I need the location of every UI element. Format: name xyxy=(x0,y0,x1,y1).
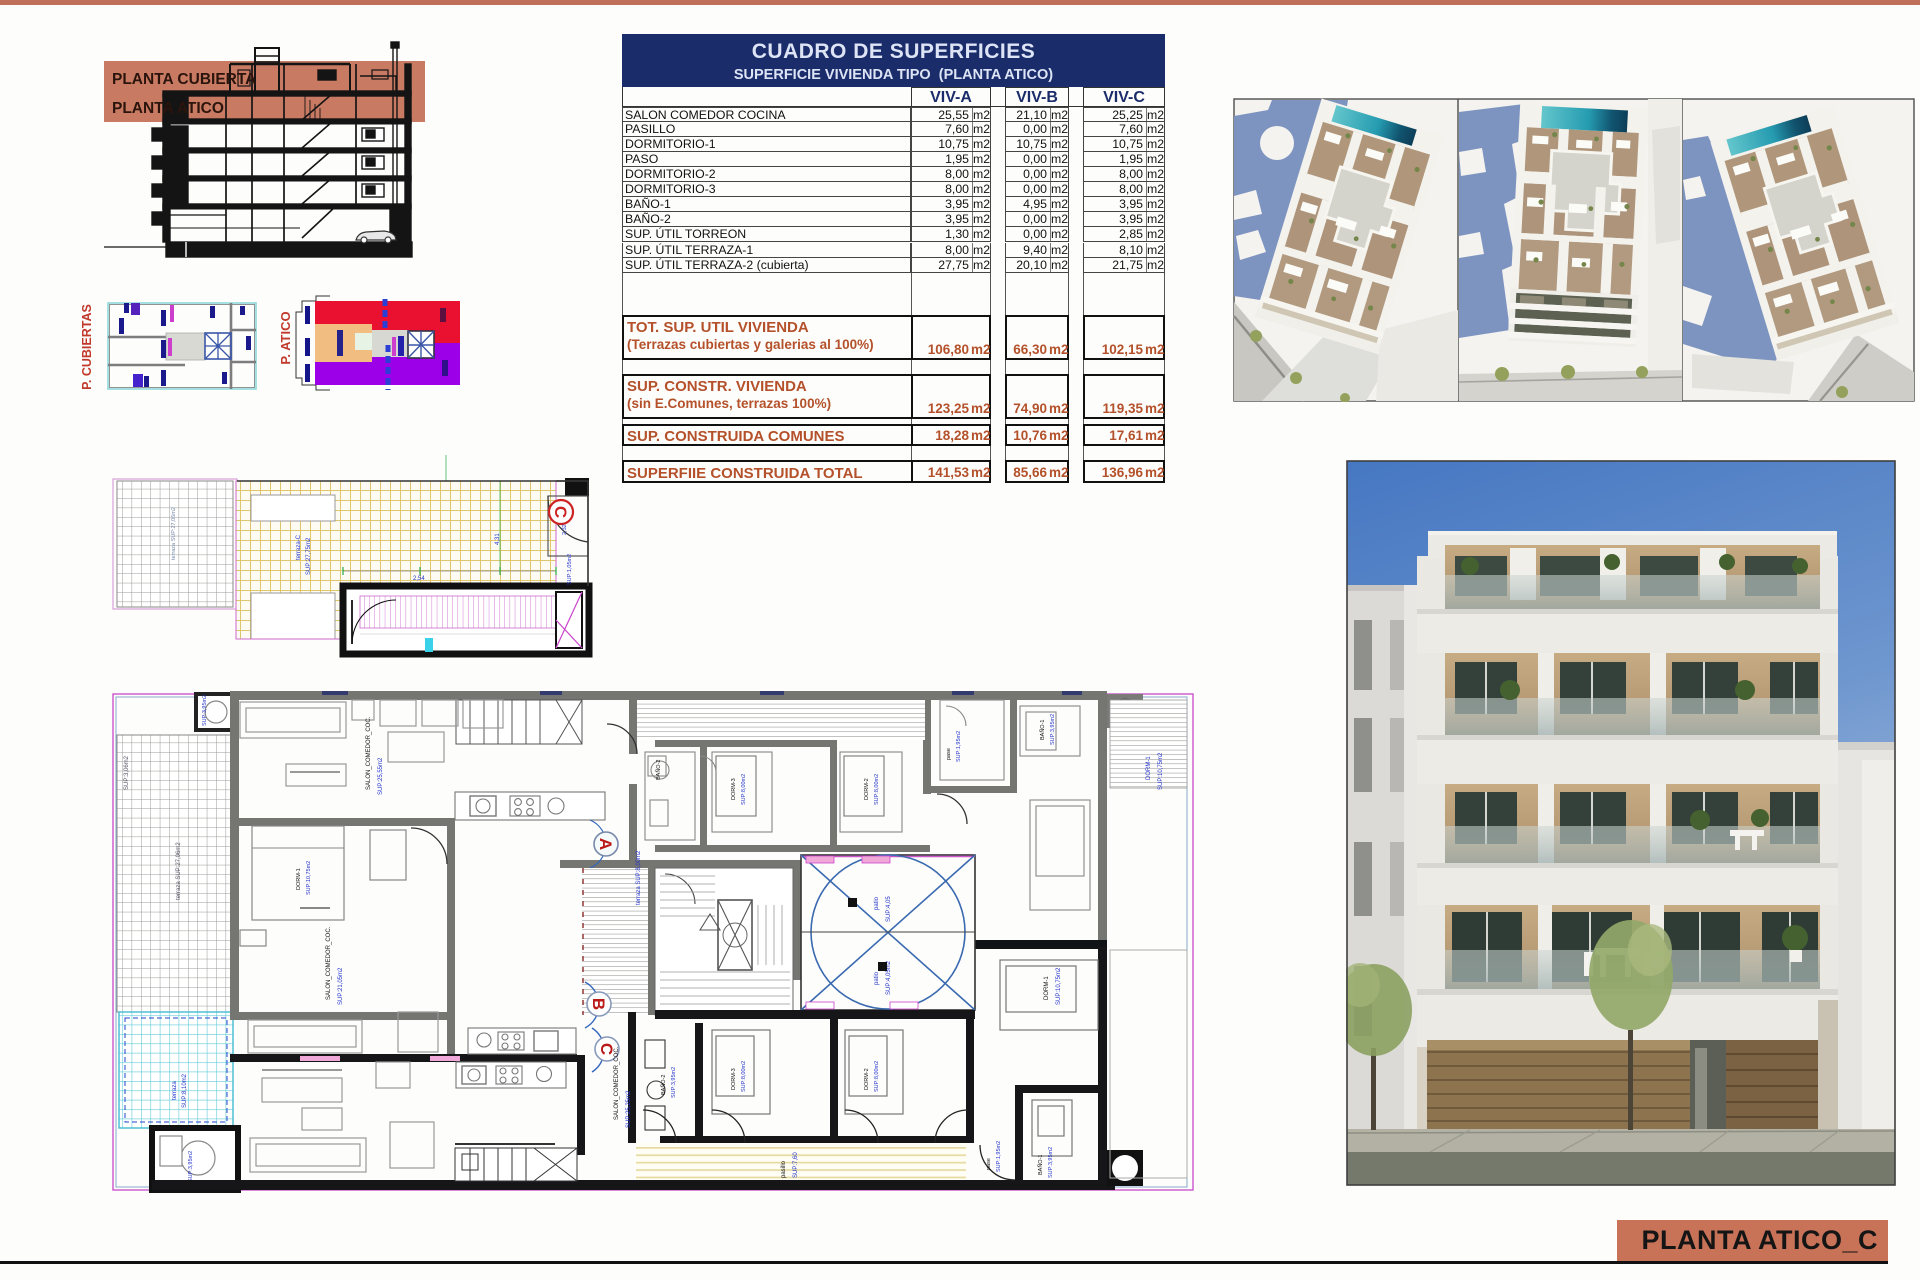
svg-text:terraza: terraza xyxy=(172,1081,178,1100)
svg-text:PLANTA ATICO: PLANTA ATICO xyxy=(112,100,224,117)
svg-text:pase: pase xyxy=(946,748,952,760)
svg-text:2,32: 2,32 xyxy=(562,524,568,535)
svg-text:DORM-2: DORM-2 xyxy=(864,778,870,800)
svg-text:BAÑO-2: BAÑO-2 xyxy=(660,1075,667,1095)
svg-text:B: B xyxy=(589,998,608,1010)
svg-text:SALON_COMEDOR_COC.: SALON_COMEDOR_COC. xyxy=(366,716,372,790)
svg-text:SUP:8,00m2: SUP:8,00m2 xyxy=(874,1061,880,1092)
svg-text:DORM-1: DORM-1 xyxy=(296,868,302,890)
svg-text:SUP:8,00m2: SUP:8,00m2 xyxy=(741,1061,747,1092)
svg-text:SUP:1,95m2: SUP:1,95m2 xyxy=(956,731,962,762)
svg-text:SUP:25,25m2: SUP:25,25m2 xyxy=(626,1090,632,1128)
svg-text:SUP:21,05m2: SUP:21,05m2 xyxy=(338,967,344,1005)
svg-text:SUP:10,75m2: SUP:10,75m2 xyxy=(1158,752,1164,790)
svg-text:C: C xyxy=(551,506,570,518)
svg-text:BAÑO-1: BAÑO-1 xyxy=(1037,1155,1044,1175)
svg-text:DORM-1: DORM-1 xyxy=(1146,756,1152,780)
svg-text:P. CUBIERTAS: P. CUBIERTAS xyxy=(80,304,94,390)
svg-text:patio: patio xyxy=(874,896,880,910)
svg-text:SUP:3,06m2: SUP:3,06m2 xyxy=(124,755,130,790)
svg-text:PLANTA CUBIERTA: PLANTA CUBIERTA xyxy=(112,71,256,88)
svg-text:SUP:8,10m2: SUP:8,10m2 xyxy=(182,1073,188,1108)
svg-text:A: A xyxy=(596,838,615,850)
svg-text:terraza SUP:27,06m2: terraza SUP:27,06m2 xyxy=(176,842,182,900)
svg-text:BAÑO-1: BAÑO-1 xyxy=(1039,720,1046,740)
svg-text:SUP:10,75m2: SUP:10,75m2 xyxy=(1056,967,1062,1005)
svg-text:SUP:7,60: SUP:7,60 xyxy=(793,1152,799,1178)
svg-text:SUP:3,95m2: SUP:3,95m2 xyxy=(188,1151,194,1182)
svg-text:pase: pase xyxy=(986,1158,992,1170)
svg-text:DORM-3: DORM-3 xyxy=(731,1068,737,1090)
svg-text:SUP:3,95m2: SUP:3,95m2 xyxy=(1048,1147,1054,1178)
svg-text:terraza SUP:27,06m2: terraza SUP:27,06m2 xyxy=(171,507,177,560)
svg-text:SUP:4,05: SUP:4,05 xyxy=(886,896,892,922)
svg-text:DORM-3: DORM-3 xyxy=(731,778,737,800)
svg-text:terraza-C: terraza-C xyxy=(296,534,302,560)
svg-text:SUP:3,95m2: SUP:3,95m2 xyxy=(1050,714,1056,745)
svg-text:SUP:8,00m2: SUP:8,00m2 xyxy=(874,774,880,805)
svg-text:DORM-2: DORM-2 xyxy=(864,1068,870,1090)
svg-text:SUP:1,95m2: SUP:1,95m2 xyxy=(996,1141,1002,1172)
svg-text:patio: patio xyxy=(874,971,880,985)
svg-text:pasillo: pasillo xyxy=(781,1160,787,1178)
svg-text:SUP:3,95m2: SUP:3,95m2 xyxy=(671,1067,677,1098)
svg-text:SUP:3,95m2: SUP:3,95m2 xyxy=(202,695,208,726)
svg-text:SUP:8,00m2: SUP:8,00m2 xyxy=(741,774,747,805)
svg-text:SUP:27,75m2: SUP:27,75m2 xyxy=(306,537,312,575)
svg-text:2,54: 2,54 xyxy=(413,576,425,582)
svg-text:SUP:1,05m2: SUP:1,05m2 xyxy=(567,554,573,585)
svg-text:terraza SUP:8,00m2: terraza SUP:8,00m2 xyxy=(636,850,642,905)
svg-text:SUP:10,75m2: SUP:10,75m2 xyxy=(306,861,312,895)
svg-text:SALON_COMEDOR_COC.: SALON_COMEDOR_COC. xyxy=(614,1046,620,1120)
svg-text:DORM-1: DORM-1 xyxy=(1044,976,1050,1000)
svg-text:BAÑO-2: BAÑO-2 xyxy=(655,760,662,780)
svg-text:P. ATICO: P. ATICO xyxy=(278,311,293,364)
svg-text:SALON_COMEDOR_COC.: SALON_COMEDOR_COC. xyxy=(326,926,332,1000)
svg-text:SUP:25,55m2: SUP:25,55m2 xyxy=(378,757,384,795)
